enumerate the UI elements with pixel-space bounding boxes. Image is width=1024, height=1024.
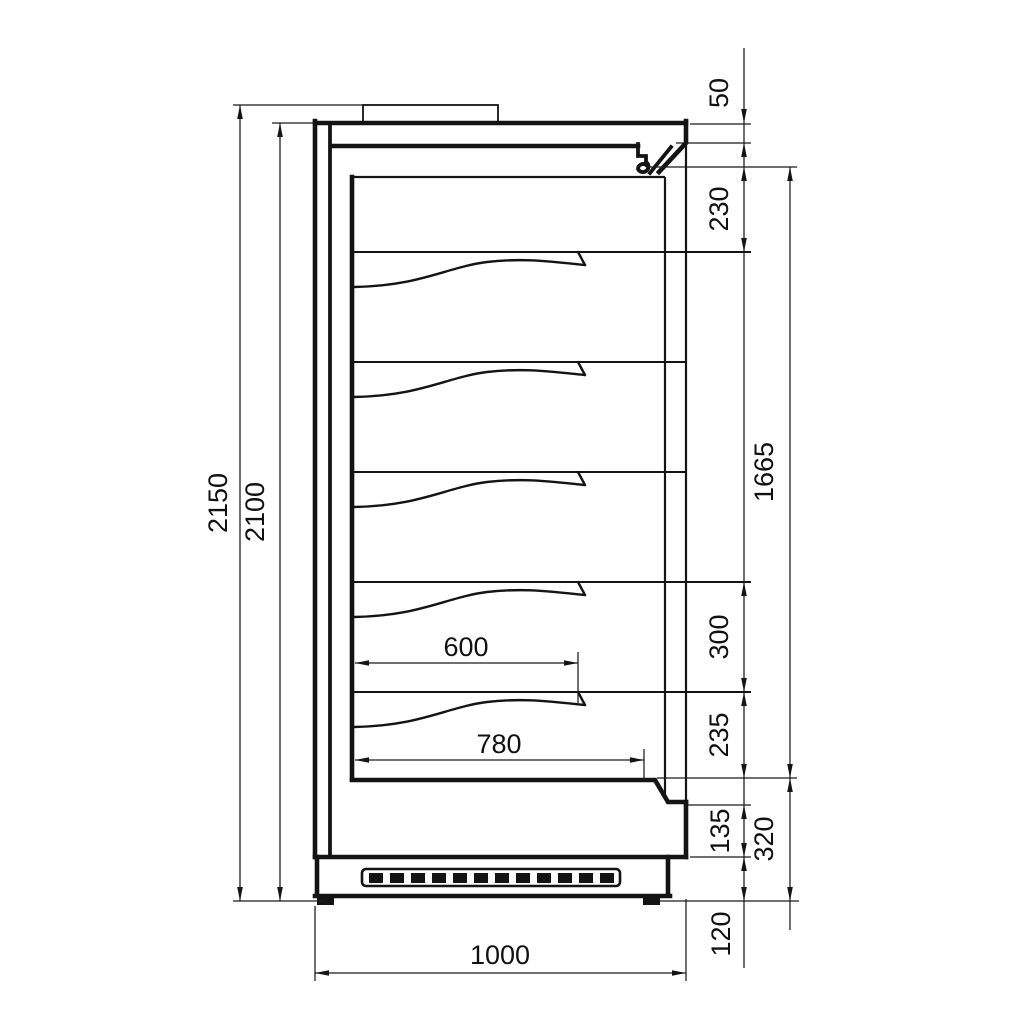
dim-plinth-label: 120: [706, 911, 736, 956]
dim-deck-height-label: 320: [749, 816, 779, 861]
dim-shelf-spacing-label: 300: [704, 614, 734, 659]
shelf-3: [354, 472, 686, 507]
dim-shelf-depth: 600: [355, 632, 578, 666]
shelf-1: [354, 252, 751, 287]
dim-deck-depth-label: 780: [476, 729, 521, 759]
dim-shelf-to-deck-label: 235: [704, 712, 734, 757]
air-discharge-step: [638, 144, 646, 162]
dim-overall-depth: 1000: [315, 940, 686, 976]
ventilation-grille: [362, 869, 620, 886]
dim-canopy-to-first-shelf-label: 230: [704, 186, 734, 231]
dimensions: 2150 2100 50 230 300 235: [203, 48, 799, 981]
dim-body-height: 2100: [240, 123, 283, 901]
dim-canopy-front-label: 50: [704, 78, 734, 108]
foot-front: [643, 896, 660, 905]
shelf-4: [354, 582, 751, 617]
dim-overall-height-label: 2150: [203, 473, 233, 533]
dim-body-height-label: 2100: [240, 482, 270, 542]
air-discharge-loop: [638, 162, 648, 172]
dim-overall-depth-label: 1000: [470, 940, 530, 970]
dim-deck-depth: 780: [355, 729, 644, 763]
dim-opening-height-label: 1665: [749, 442, 779, 502]
deck: [352, 780, 686, 802]
top-unit-box: [363, 105, 498, 122]
dim-chain-inner: 50 230 300 235 135 120: [704, 48, 747, 968]
dim-shelf-depth-label: 600: [443, 632, 488, 662]
dim-chain-outer: 1665 320: [749, 167, 793, 930]
technical-drawing-multideck-side-section: 2150 2100 50 230 300 235: [0, 0, 1024, 1024]
cabinet-outline: [315, 105, 751, 905]
shelf-5: [354, 692, 751, 727]
dim-overall-height: 2150: [203, 105, 243, 901]
shelves: [354, 252, 751, 727]
shelf-2: [354, 362, 686, 397]
dim-front-panel-label: 135: [705, 808, 735, 853]
